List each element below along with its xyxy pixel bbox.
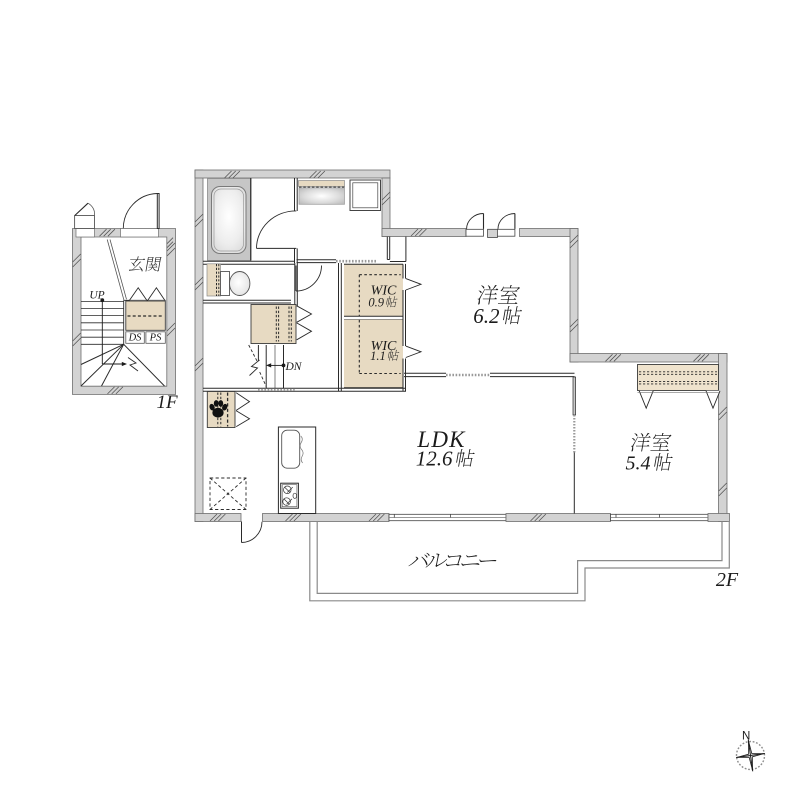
svg-text:5.4: 5.4 <box>626 452 651 474</box>
svg-text:2F: 2F <box>716 569 739 591</box>
svg-text:1.1: 1.1 <box>370 349 386 363</box>
svg-text:PS: PS <box>149 332 162 343</box>
svg-text:DS: DS <box>128 332 143 343</box>
svg-text:0.9: 0.9 <box>368 295 384 309</box>
svg-text:6.2: 6.2 <box>473 304 500 328</box>
svg-text:1F: 1F <box>156 392 178 413</box>
svg-text:N: N <box>742 731 750 743</box>
svg-text:12.6: 12.6 <box>416 446 453 470</box>
svg-text:DN: DN <box>285 361 303 373</box>
